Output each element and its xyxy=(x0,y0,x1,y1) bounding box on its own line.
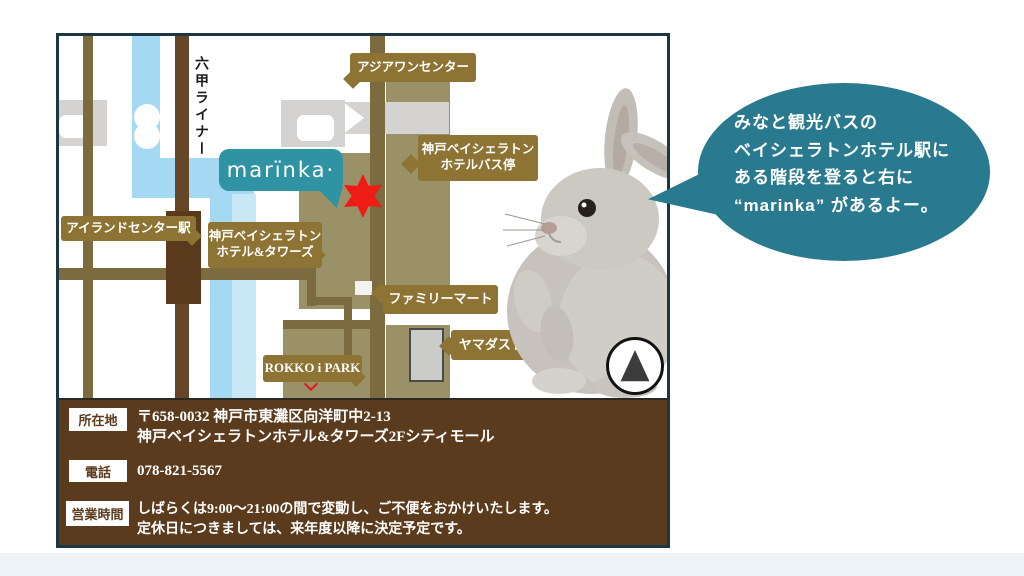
street-map: 六甲ライナー アジアワンセンター 神戸ベイシェラトン ホテルバス停 アイランドセ… xyxy=(59,36,667,398)
bottom-tint-strip xyxy=(0,553,1024,576)
family-mart-building xyxy=(355,281,372,295)
label-family-mart: ファミリーマート xyxy=(383,285,498,314)
marinka-logo: marïnka· xyxy=(219,149,343,191)
shop-info-panel: 所在地 〒658-0032 神戸市東灘区向洋町中2-13 神戸ベイシェラトンホテ… xyxy=(59,398,667,545)
label-sheraton-hotel-towers: 神戸ベイシェラトン ホテル&タワーズ xyxy=(208,222,322,268)
compass-triangle xyxy=(616,346,654,386)
speech-bubble-text: みなと観光バスの ベイシェラトンホテル駅に ある階段を登ると右に “marink… xyxy=(734,109,994,219)
hours-value: しばらくは9:00〜21:00の間で変動し、ご不便をおかけいたします。 定休日に… xyxy=(137,500,558,540)
bubble-line4: “marinka” があるよー。 xyxy=(734,192,994,220)
access-map-page: 六甲ライナー アジアワンセンター 神戸ベイシェラトン ホテルバス停 アイランドセ… xyxy=(0,0,1024,576)
hours-line2: 定休日につきましては、来年度以降に決定予定です。 xyxy=(137,520,558,540)
north-compass-icon xyxy=(606,337,664,395)
label-island-center-station: アイランドセンター駅 xyxy=(61,216,196,241)
label-line: ホテル&タワーズ xyxy=(216,245,313,261)
yamada-store-building xyxy=(409,328,444,382)
phone-label: 電話 xyxy=(69,460,127,482)
label-line: 神戸ベイシェラトン xyxy=(209,229,322,245)
pedestrian-deck-arrow xyxy=(343,102,449,134)
road-vertical-east xyxy=(370,36,385,398)
address-line1: 〒658-0032 神戸市東灘区向洋町中2-13 xyxy=(137,407,495,427)
address-value: 〒658-0032 神戸市東灘区向洋町中2-13 神戸ベイシェラトンホテル&タワ… xyxy=(137,407,495,447)
bubble-line2: ベイシェラトンホテル駅に xyxy=(734,137,994,165)
address-line2: 神戸ベイシェラトンホテル&タワーズ2Fシティモール xyxy=(137,427,495,447)
bubble-line3: ある階段を登ると右に xyxy=(734,164,994,192)
rokko-liner-line-name: 六甲ライナー xyxy=(190,56,210,196)
map-card: 六甲ライナー アジアワンセンター 神戸ベイシェラトン ホテルバス停 アイランドセ… xyxy=(56,33,670,548)
bubble-line1: みなと観光バスの xyxy=(734,109,994,137)
hours-line1: しばらくは9:00〜21:00の間で変動し、ご不便をおかけいたします。 xyxy=(137,500,558,520)
phone-value: 078-821-5567 xyxy=(137,461,222,481)
liner-station-marker xyxy=(134,123,160,149)
hours-label: 営業時間 xyxy=(66,501,129,526)
center-building-courtyard xyxy=(297,115,334,141)
road-step-vertical-2 xyxy=(344,297,352,361)
address-label: 所在地 xyxy=(69,408,127,431)
label-asia-one-center: アジアワンセンター xyxy=(350,53,476,82)
